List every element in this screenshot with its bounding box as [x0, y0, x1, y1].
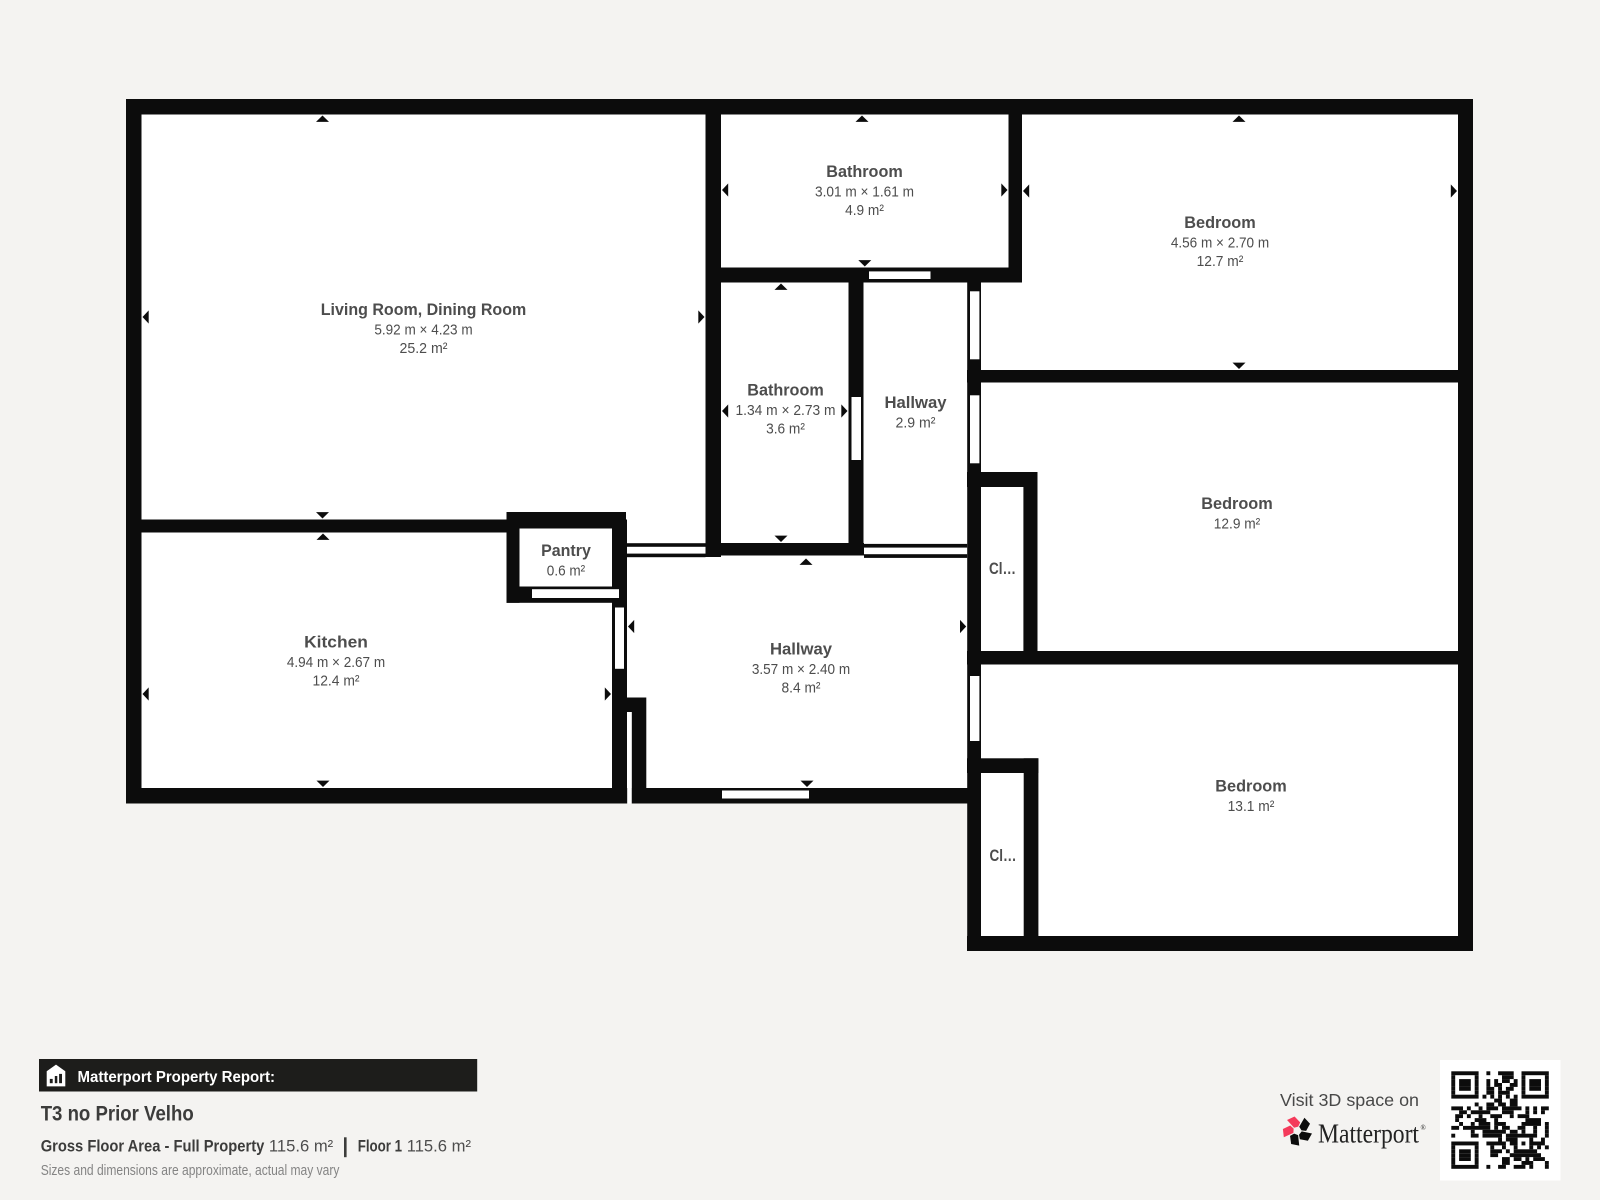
- svg-text:3.57 m × 2.40 m: 3.57 m × 2.40 m: [752, 661, 850, 678]
- svg-text:Pantry: Pantry: [541, 541, 591, 560]
- svg-text:2.9 m²: 2.9 m²: [896, 415, 936, 432]
- svg-text:Cl…: Cl…: [989, 559, 1016, 578]
- svg-text:Hallway: Hallway: [884, 393, 947, 412]
- svg-text:4.56 m × 2.70 m: 4.56 m × 2.70 m: [1171, 235, 1269, 252]
- svg-text:Visit 3D space on: Visit 3D space on: [1280, 1090, 1419, 1110]
- svg-text:12.4 m²: 12.4 m²: [313, 673, 360, 690]
- svg-text:13.1 m²: 13.1 m²: [1228, 798, 1275, 815]
- svg-text:Sizes and dimensions are appro: Sizes and dimensions are approximate, ac…: [41, 1163, 340, 1179]
- svg-text:Cl…: Cl…: [990, 846, 1017, 865]
- svg-text:Matterport Property Report:: Matterport Property Report:: [78, 1069, 276, 1086]
- svg-text:Kitchen: Kitchen: [304, 633, 368, 652]
- svg-text:Gross Floor Area - Full Proper: Gross Floor Area - Full Property: [41, 1137, 265, 1156]
- svg-text:4.9 m²: 4.9 m²: [845, 202, 884, 219]
- svg-text:12.9 m²: 12.9 m²: [1214, 516, 1261, 533]
- svg-text:Living Room, Dining Room: Living Room, Dining Room: [321, 300, 527, 319]
- svg-text:®: ®: [1421, 1124, 1427, 1132]
- svg-text:115.6 m²: 115.6 m²: [407, 1137, 472, 1156]
- svg-text:12.7 m²: 12.7 m²: [1197, 253, 1244, 270]
- svg-text:Hallway: Hallway: [770, 640, 833, 659]
- svg-text:Bedroom: Bedroom: [1215, 777, 1287, 796]
- svg-text:Matterport: Matterport: [1318, 1119, 1419, 1149]
- svg-text:3.01 m × 1.61 m: 3.01 m × 1.61 m: [815, 184, 914, 201]
- svg-text:4.94 m × 2.67 m: 4.94 m × 2.67 m: [287, 654, 385, 671]
- svg-text:1.34 m × 2.73 m: 1.34 m × 2.73 m: [736, 402, 836, 419]
- svg-text:5.92 m × 4.23 m: 5.92 m × 4.23 m: [374, 322, 472, 339]
- svg-text:T3 no Prior Velho: T3 no Prior Velho: [41, 1102, 194, 1126]
- svg-text:3.6 m²: 3.6 m²: [766, 421, 805, 438]
- svg-text:Bathroom: Bathroom: [747, 381, 824, 400]
- svg-text:115.6 m²: 115.6 m²: [269, 1137, 334, 1156]
- svg-text:25.2 m²: 25.2 m²: [400, 340, 448, 357]
- svg-text:Bathroom: Bathroom: [826, 162, 903, 181]
- svg-text:8.4 m²: 8.4 m²: [782, 680, 821, 697]
- svg-text:Floor 1: Floor 1: [358, 1137, 402, 1156]
- svg-text:Bedroom: Bedroom: [1184, 213, 1256, 232]
- svg-text:0.6 m²: 0.6 m²: [547, 563, 585, 580]
- svg-text:Bedroom: Bedroom: [1201, 494, 1273, 513]
